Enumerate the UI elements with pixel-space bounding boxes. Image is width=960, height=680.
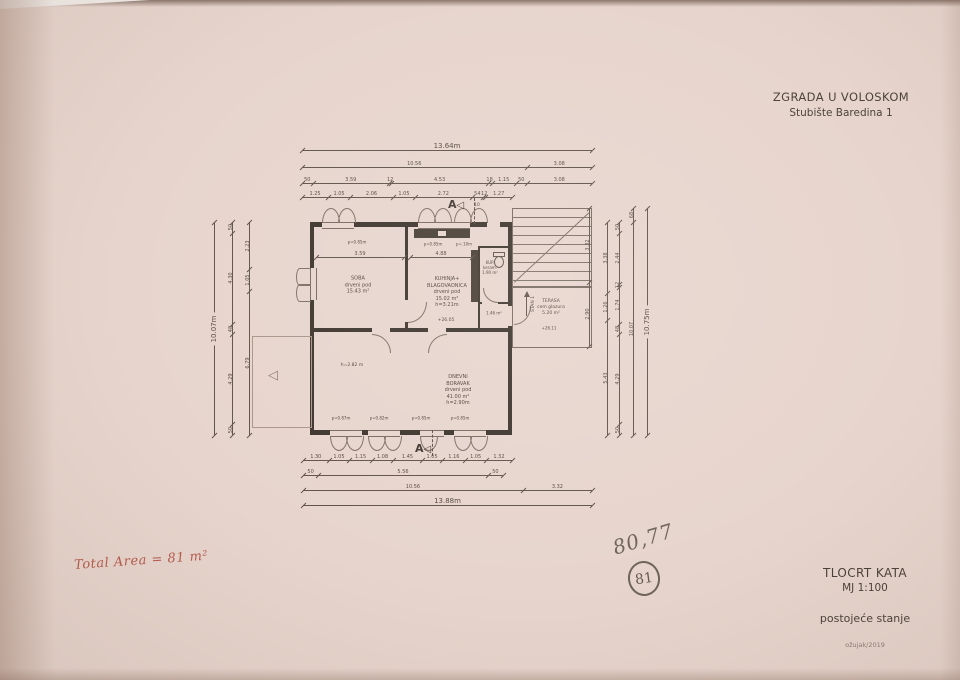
room-label-line: h=2.82 m — [341, 363, 363, 369]
room-label-p_top_3: p=.10m — [456, 241, 472, 246]
dimension-value: 13.88m — [431, 497, 464, 505]
dimension-line — [589, 208, 590, 346]
room-label-line: +26.05 — [438, 318, 455, 324]
dimension-line — [303, 475, 503, 476]
dimension-tick — [510, 195, 516, 201]
room-label-kup: KUP.keram.1.90 m² — [482, 260, 498, 276]
door-swing-arc — [408, 302, 427, 323]
room-label-kuhinja: KUHINJA+BLAGOVAONICAdrveni pod15.02 m²h=… — [427, 276, 467, 309]
dimension-value: 4.53 — [434, 177, 445, 183]
dimension-line — [302, 167, 592, 168]
wall-segment — [478, 304, 480, 330]
dimension-value: 2.72 — [438, 191, 449, 197]
room-label-line: h=2.90m — [445, 400, 472, 407]
dimension-value: 1.05 — [245, 275, 251, 286]
dimension-line — [303, 505, 592, 506]
room-label-p_bot_2: p=0.82m — [370, 415, 389, 420]
dimension-tick — [590, 148, 596, 154]
dimension-value: 4.30 — [228, 272, 234, 283]
room-label-hodnik_area: 1.46 m² — [486, 310, 502, 315]
section-marker: A◁ — [448, 198, 464, 211]
dimension-value: 5.56 — [397, 469, 408, 475]
dimension-value: 13.64m — [431, 142, 464, 150]
dimension-value: 1.15 — [355, 454, 366, 460]
dimension-value: 1.05 — [470, 454, 481, 460]
dimension-value: 2.90 — [585, 308, 591, 319]
dimension-value: 50 — [492, 469, 498, 475]
dimension-value: 1.25 — [309, 191, 320, 197]
room-label-line: p=0.82m — [370, 415, 389, 420]
wall-segment — [478, 246, 512, 248]
dimension-value: 50 — [228, 224, 234, 230]
room-label-p_bot_4: p=0.85m — [451, 415, 470, 420]
window — [322, 222, 354, 229]
wall-segment — [498, 302, 512, 304]
wall-segment — [444, 430, 454, 435]
room-label-line: 15.43 m² — [345, 288, 372, 295]
dimension-line — [303, 460, 512, 461]
dimension-value: 5.43 — [603, 372, 609, 383]
dimension-value: 10.07m — [210, 312, 218, 345]
room-label-line: DNEVNI — [445, 374, 472, 381]
dimension-value: 4.29 — [228, 373, 234, 384]
wall-segment — [478, 246, 480, 304]
room-label-line: p=.10m — [456, 241, 472, 246]
dimension-value: 3.32 — [585, 239, 591, 250]
shutter-arc — [296, 284, 311, 302]
dimension-tick — [590, 181, 596, 187]
dimension-value: 1.05 — [427, 454, 438, 460]
dimension-tick — [590, 165, 596, 171]
dimension-line — [410, 257, 472, 258]
garage-outline — [252, 336, 312, 428]
dimension-tick — [510, 458, 516, 464]
dimension-value: 2.23 — [245, 240, 251, 251]
room-label-line: 1.46 m² — [486, 310, 502, 315]
dimension-value: 3.59 — [345, 177, 356, 183]
shutter-arc — [470, 208, 488, 223]
dimension-tick — [605, 433, 611, 439]
room-label-line: p=0.87m — [332, 415, 351, 420]
dimension-value: 50 — [615, 224, 621, 230]
section-letter: A — [448, 198, 457, 211]
section-triangle-icon: ◁ — [457, 200, 465, 211]
dimension-value: 12 — [481, 191, 487, 197]
dimension-value: 50 — [304, 177, 310, 183]
dimension-value: 3.08 — [554, 177, 565, 183]
room-label-soba: SOBAdrveni pod15.43 m² — [345, 275, 372, 295]
door-swing-arc — [483, 288, 498, 303]
dimension-value: 1.74 — [615, 300, 621, 311]
wall-segment — [390, 328, 428, 332]
dimension-value: 1.32 — [493, 454, 504, 460]
section-line — [474, 198, 475, 224]
dimension-value: 1.15 — [498, 177, 509, 183]
dimension-value: 1.08 — [377, 454, 388, 460]
room-label-line: h=3.21m — [427, 302, 467, 309]
dimension-tick — [501, 473, 507, 479]
room-label-stan: STAN 1 — [531, 296, 537, 312]
dimension-tick — [617, 433, 623, 439]
room-label-terasa: TERASAcem glazura5.20 m² — [537, 299, 565, 317]
dimension-value: 12 — [615, 282, 621, 288]
room-label-h_left: h=2.82 m — [341, 363, 363, 369]
door-swing-arc — [372, 334, 391, 353]
room-label-p_top_2: p=0.85m — [424, 241, 443, 246]
wall-segment — [400, 430, 420, 435]
dimension-value: 48 — [228, 325, 234, 331]
entrance-arrow — [526, 296, 527, 316]
floor-plan-drawing: ◁A◁A◁SOBAdrveni pod15.43 m²KUHINJA+BLAGO… — [0, 0, 960, 680]
dimension-value: 6.79 — [245, 358, 251, 369]
garage-triangle-symbol: ◁ — [268, 368, 278, 383]
wall-segment — [310, 222, 314, 268]
dimension-value: 1.26 — [603, 301, 609, 312]
room-label-line: p=0.85m — [424, 241, 443, 246]
dimension-value: 1.16 — [448, 454, 459, 460]
dimension-tick — [212, 433, 218, 439]
dimension-value: 10.07 — [629, 322, 635, 336]
dimension-value: 18 — [486, 177, 492, 183]
dimension-tick — [230, 433, 236, 439]
shutter-arc — [470, 436, 488, 451]
room-label-p_bot_3: p=0.85m — [412, 415, 431, 420]
room-label-p_top_1: p=0.85m — [348, 239, 367, 244]
dimension-value: 1.05 — [333, 191, 344, 197]
window — [418, 222, 470, 229]
shutter-arc — [346, 436, 364, 451]
dimension-tick — [590, 488, 596, 494]
dimension-line — [303, 490, 592, 491]
wall-segment — [310, 328, 372, 332]
dimension-line — [316, 257, 404, 258]
dimension-value: 1.30 — [310, 454, 321, 460]
room-label-line: p=0.85m — [348, 239, 367, 244]
dimension-value: 1.45 — [402, 454, 413, 460]
dimension-value: 1.27 — [493, 191, 504, 197]
dimension-value: 10.75m — [643, 305, 651, 338]
dimension-value: 1.05 — [398, 191, 409, 197]
kitchen-sink — [438, 231, 446, 236]
door-swing-arc — [428, 334, 447, 353]
dimension-value: 50 — [228, 427, 234, 433]
dimension-line — [249, 222, 250, 435]
room-label-line: p=0.85m — [412, 415, 431, 420]
dimension-value: 50 — [615, 427, 621, 433]
dimension-value: 54 — [474, 191, 480, 197]
room-label-line: drveni pod — [445, 387, 472, 394]
wall-segment — [354, 222, 418, 227]
dimension-value: 2.44 — [615, 253, 621, 264]
room-label-level_terrace: +26.11 — [542, 325, 557, 330]
room-label-p_bot_1: p=0.87m — [332, 415, 351, 420]
room-label-line: 5.20 m² — [537, 311, 565, 317]
wall-segment — [405, 222, 408, 300]
dimension-value: 2.06 — [366, 191, 377, 197]
room-label-level_kitchen: +26.05 — [438, 318, 455, 324]
dimension-line — [302, 150, 592, 151]
dimension-tick — [631, 433, 637, 439]
window — [310, 268, 317, 300]
dimension-value: 3.59 — [354, 251, 365, 257]
photo-of-floor-plan-document: { "header": { "title": "ZGRADA U VOLOSKO… — [0, 0, 960, 680]
dimension-tick — [247, 433, 253, 439]
shutter-arc — [384, 436, 402, 451]
room-label-dnevni: DNEVNIBORAVAKdrveni pod41.00 m²h=2.90m — [445, 374, 472, 407]
room-label-line: 1.90 m² — [482, 271, 498, 276]
shutter-arc — [338, 208, 356, 223]
room-label-line: STAN 1 — [531, 296, 537, 312]
section-letter: A — [415, 442, 424, 455]
room-label-line: 10 — [474, 203, 480, 209]
dimension-value: 3.32 — [552, 484, 563, 490]
wall-segment — [405, 322, 408, 332]
dimension-value: 10.56 — [406, 484, 420, 490]
room-label-ten: 10 — [474, 203, 480, 209]
section-line — [432, 430, 433, 456]
dimension-value: 48 — [615, 325, 621, 331]
dimension-value: 4.88 — [435, 251, 446, 257]
dimension-line — [302, 183, 592, 184]
dimension-tick — [645, 433, 651, 439]
room-label-line: +26.11 — [542, 325, 557, 330]
dimension-value: 10.56 — [407, 161, 421, 167]
dimension-tick — [590, 503, 596, 509]
dimension-value: 3.38 — [603, 252, 609, 263]
dimension-value: 12 — [387, 177, 393, 183]
dimension-value: 3.08 — [554, 161, 565, 167]
room-label-line: cem glazura — [537, 305, 565, 311]
dimension-value: 1.05 — [333, 454, 344, 460]
dimension-value: 50 — [518, 177, 524, 183]
dimension-value: 50 — [307, 469, 313, 475]
room-label-line: p=0.85m — [451, 415, 470, 420]
dimension-value: 4.29 — [615, 373, 621, 384]
dimension-value: 68 — [629, 212, 635, 218]
